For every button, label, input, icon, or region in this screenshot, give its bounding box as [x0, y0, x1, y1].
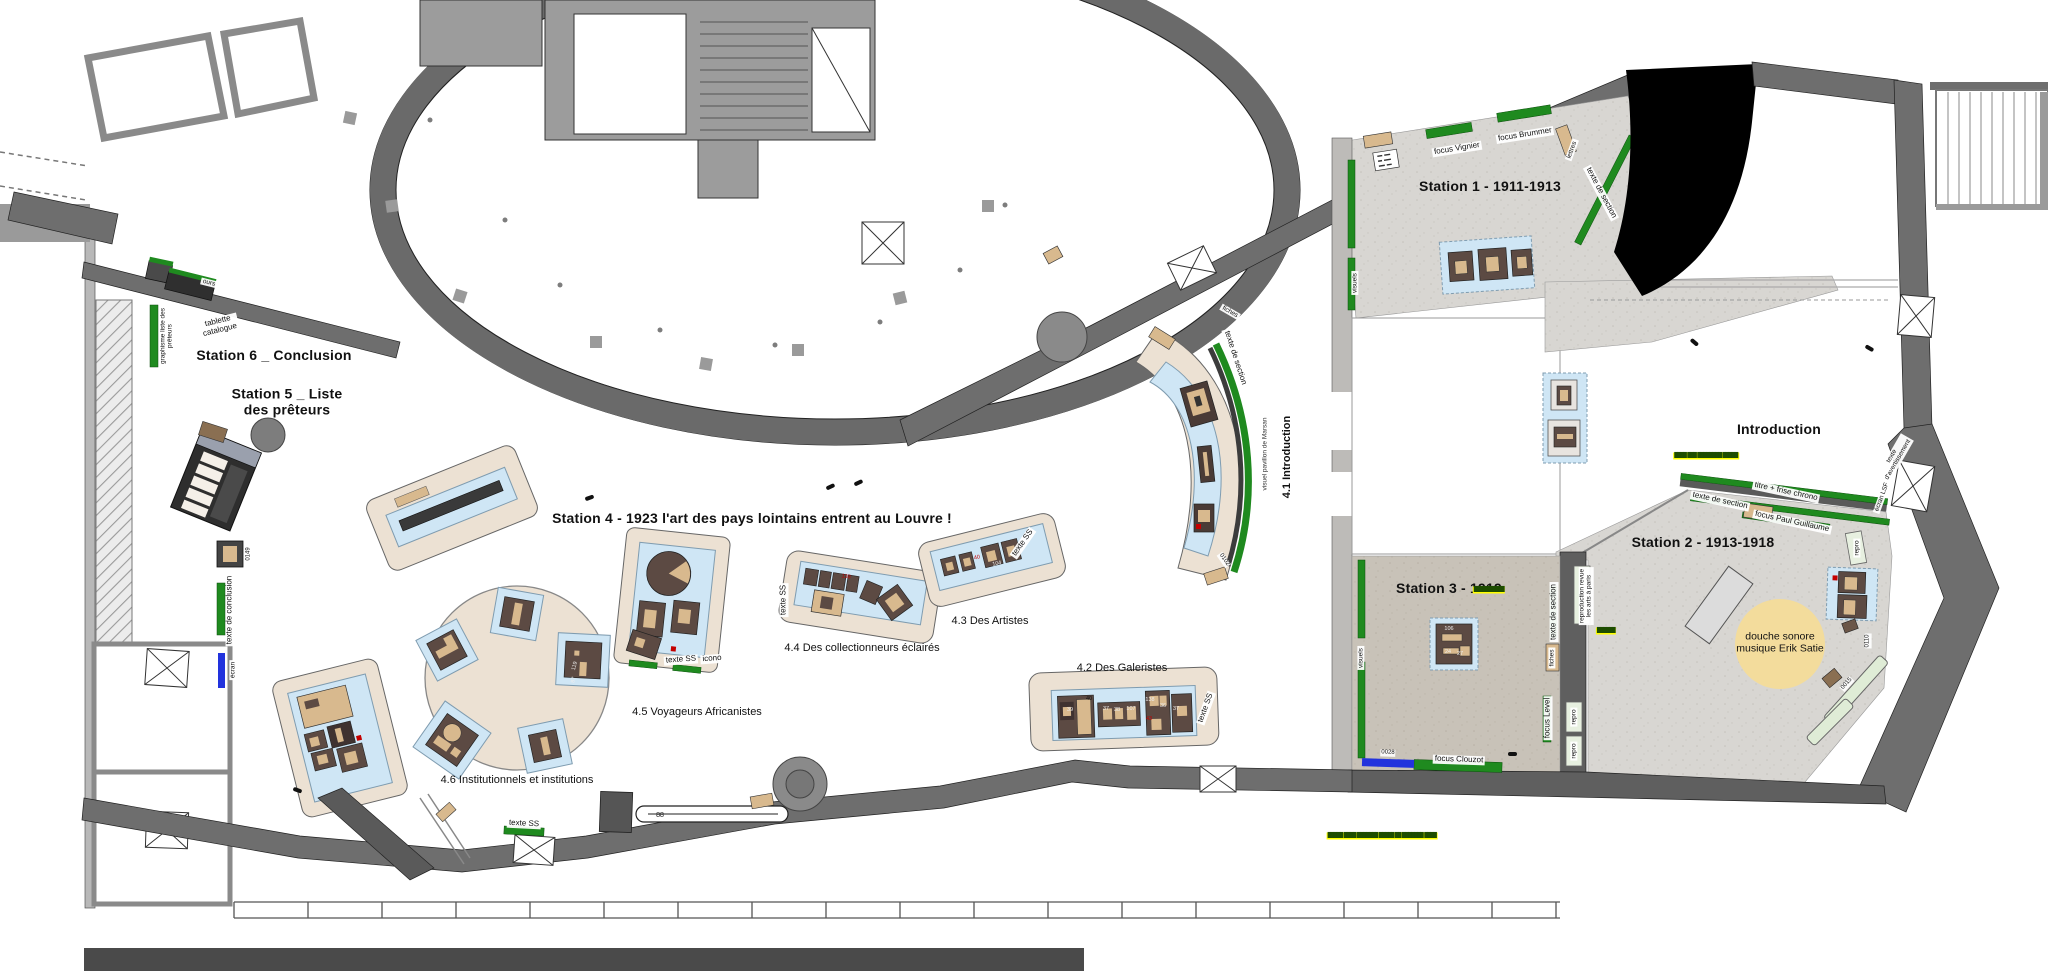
- showcase-44: [777, 549, 942, 645]
- ref-0110: 0110: [1865, 634, 1872, 649]
- area-43-label: 4.3 Des Artistes: [951, 615, 1028, 627]
- exhibition-floor-plan: Station 1 - 1911-1913 Station 2 - 1913-1…: [0, 0, 2048, 971]
- texte-ss-44-label: texte SS: [780, 583, 789, 617]
- introduction-display-case: [1543, 373, 1587, 463]
- num-39-42: 39: [1067, 707, 1073, 713]
- ecran-s6-label: écran: [229, 660, 236, 680]
- circular-platform: [413, 586, 610, 779]
- area-42-label: 4.2 Des Galeristes: [1077, 662, 1167, 674]
- num-107-42: 107: [1126, 706, 1135, 712]
- area-46-label: 4.6 Institutionnels et institutions: [441, 774, 594, 786]
- num-24-s3: 24: [1445, 649, 1451, 655]
- num-37b-42: 37: [1173, 706, 1179, 712]
- num-138-44: 138: [841, 573, 851, 581]
- area-45-label: 4.5 Voyageurs Africanistes: [632, 706, 762, 718]
- area-41-label: 4.1 Introduction: [1281, 416, 1293, 499]
- num-106-s3: 106: [1444, 626, 1453, 632]
- num-40-42: 40: [1086, 696, 1092, 702]
- station1-title: Station 1 - 1911-1913: [1419, 179, 1561, 195]
- graphisme-liste-label: graphisme liste des prêteurs: [160, 306, 175, 366]
- num-36-42: 36: [1160, 703, 1166, 709]
- num-43-42: 43: [1146, 716, 1152, 722]
- ref-0149: 0149: [246, 546, 253, 561]
- texte-ss-bottom-label: texte SS: [507, 819, 542, 830]
- visuels-s1-label: visuels: [1351, 271, 1358, 295]
- station2-title: Station 2 - 1913-1918: [1632, 535, 1775, 551]
- icono-label: icono: [700, 654, 724, 665]
- annotation-small: ██████: [1596, 628, 1616, 635]
- fiches-s3-label: fiches: [1548, 648, 1555, 669]
- introduction-title: Introduction: [1737, 422, 1821, 438]
- focus-level-label: focus Level: [1544, 696, 1553, 740]
- area-44-label: 4.4 Des collectionneurs éclairés: [784, 642, 939, 654]
- bench-88-label: 88: [656, 812, 664, 820]
- station2-display-case: [1826, 567, 1878, 621]
- stair-void: [1614, 64, 1758, 296]
- plan-drawing: [0, 0, 2048, 971]
- visuel-pavillon-label: visuel pavillon de Marsan: [1261, 418, 1268, 491]
- station3-display-case: [1430, 618, 1478, 670]
- station1-display-case: [1439, 236, 1534, 294]
- num-138-42: 138: [1145, 697, 1154, 703]
- texte-conclusion-label: texte de conclusion: [226, 574, 235, 647]
- annotation-intro: ████ ███ ████████ █████: [1673, 453, 1739, 460]
- showcase-45-pirogue: [364, 443, 541, 573]
- texte-section-s3-label: texte de section: [1550, 582, 1559, 642]
- station6-title: Station 6 _ Conclusion: [196, 348, 351, 364]
- annotation-station3: ██████████: [1473, 587, 1505, 594]
- sound-shower-label: douche sonore musique Erik Satie: [1736, 631, 1824, 655]
- repro-b-label: repro: [1570, 741, 1577, 760]
- showcase-42: [1029, 667, 1220, 752]
- station5-list-display: [171, 429, 262, 531]
- num-40-43: 40: [973, 554, 980, 561]
- station5-title: Station 5 _ Liste des prêteurs: [232, 386, 343, 417]
- showcase-41: [1136, 327, 1248, 586]
- repro-a-label: repro: [1570, 707, 1577, 726]
- station4-title: Station 4 - 1923 l'art des pays lointain…: [552, 511, 952, 527]
- visuels-s3-label: visuels: [1357, 646, 1364, 670]
- ref-0028: 0028: [1380, 749, 1396, 756]
- repro-s2-label: repro: [1853, 538, 1860, 557]
- reproduction-revue-label: reproduction revue les arts à paris: [1579, 567, 1594, 625]
- focus-clouzot-label: focus Clouzot: [1433, 755, 1486, 766]
- num-27-s3: 27: [1457, 651, 1463, 657]
- num-38a-42: 38: [1114, 707, 1120, 713]
- num-37a-42: 37: [1103, 706, 1109, 712]
- left-wing-walls: [0, 21, 314, 908]
- annotation-plinth: █████ ████ ███████ █████ ██ ███████ ████: [1327, 833, 1438, 840]
